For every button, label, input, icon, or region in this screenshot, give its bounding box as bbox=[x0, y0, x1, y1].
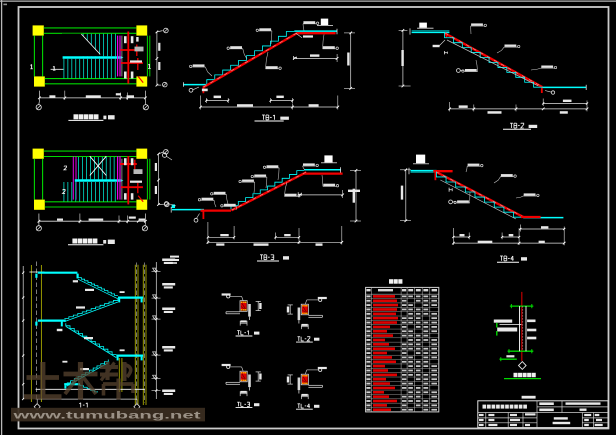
svg-text:www.tumubang.net: www.tumubang.net bbox=[11, 410, 201, 421]
